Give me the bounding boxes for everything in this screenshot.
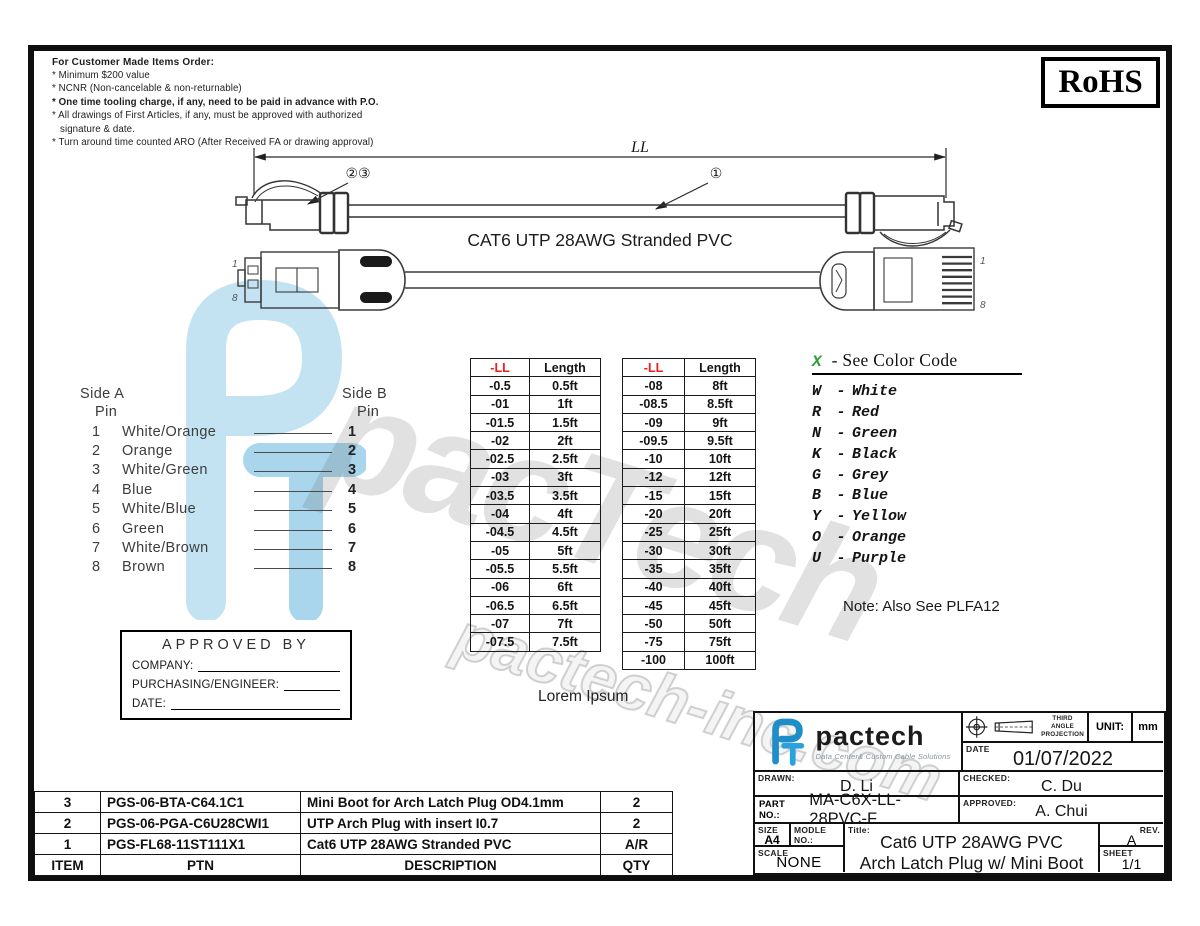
dash-separator: - xyxy=(830,550,852,567)
ll-code-cell: -01.5 xyxy=(471,413,530,431)
length-value-cell: 50ft xyxy=(685,615,756,633)
pactech-logo-cell: pactech Data Center& Custom Cable Soluti… xyxy=(755,713,963,772)
wiring-row: 4 Blue 4 xyxy=(92,480,398,499)
cable-label: CAT6 UTP 28AWG Stranded PVC xyxy=(467,230,732,250)
length-value-cell: 9ft xyxy=(685,413,756,431)
wiring-row: 7 White/Brown 7 xyxy=(92,538,398,557)
ll-code-cell: -40 xyxy=(623,578,685,596)
side-b-pin-number: 2 xyxy=(348,443,356,459)
ll-code-cell: -06.5 xyxy=(471,596,530,614)
ll-code-cell: -03 xyxy=(471,468,530,486)
color-name: White xyxy=(852,383,897,400)
length-table-row: -0.5 0.5ft xyxy=(471,377,601,395)
color-name: Grey xyxy=(852,467,888,484)
ll-code-cell: -09.5 xyxy=(623,432,685,450)
ll-code-cell: -20 xyxy=(623,505,685,523)
title-block: pactech Data Center& Custom Cable Soluti… xyxy=(753,711,1166,875)
side-a-pin-number: 6 xyxy=(92,521,122,537)
dash-separator: - xyxy=(830,508,852,525)
length-value-cell: 1.5ft xyxy=(530,413,601,431)
length-table-row: -08.5 8.5ft xyxy=(623,395,756,413)
ll-code-cell: -02.5 xyxy=(471,450,530,468)
note-line: * NCNR (Non-cancelable & non-returnable) xyxy=(52,82,404,95)
approved-field-label: PURCHASING/ENGINEER: xyxy=(132,679,279,691)
bom-item-cell: 1 xyxy=(35,834,101,855)
length-value-cell: 9.5ft xyxy=(685,432,756,450)
date-cell: DATE 01/07/2022 xyxy=(963,743,1163,772)
side-b-pin-number: 1 xyxy=(348,424,356,440)
length-value-cell: 2ft xyxy=(530,432,601,450)
length-table-row: -03.5 3.5ft xyxy=(471,487,601,505)
dash-separator: - xyxy=(830,529,852,546)
brand-tagline: Data Center& Custom Cable Solutions xyxy=(816,752,951,761)
dash-separator: - xyxy=(830,467,852,484)
bom-item-cell: 2 xyxy=(35,813,101,834)
projection-cell: THIRD ANGLE PROJECTION xyxy=(963,713,1089,743)
bom-table: 3 PGS-06-BTA-C64.1C1 Mini Boot for Arch … xyxy=(34,791,673,876)
bom-ptn-cell: PGS-06-PGA-C6U28CWI1 xyxy=(101,813,301,834)
side-b-pin-number: 3 xyxy=(348,462,356,478)
pin-1-label: 1 xyxy=(232,259,238,270)
length-value-cell: 3.5ft xyxy=(530,487,601,505)
color-name: Red xyxy=(852,404,879,421)
length-value-cell: 75ft xyxy=(685,633,756,651)
wire-color-label: White/Brown xyxy=(122,540,254,556)
side-b-pin-number: 4 xyxy=(348,482,356,498)
color-name: Purple xyxy=(852,550,906,567)
approved-field-label: DATE: xyxy=(132,698,166,710)
length-table-row: -75 75ft xyxy=(623,633,756,651)
color-code-entry: Y - Yellow xyxy=(812,506,1022,527)
ll-code-cell: -35 xyxy=(623,560,685,578)
model-no-label: MODLE NO.: xyxy=(794,825,843,845)
length-table-row: -06 6ft xyxy=(471,578,601,596)
side-b-pin-number: 6 xyxy=(348,521,356,537)
wire-connection-line xyxy=(254,530,332,531)
rev-label: REV. xyxy=(1140,825,1160,835)
bom-description-cell: UTP Arch Plug with insert I0.7 xyxy=(301,813,601,834)
ll-code-cell: -0.5 xyxy=(471,377,530,395)
wire-connection-line xyxy=(254,549,332,550)
length-table-2: -LL Length -08 8ft -08.5 8.5ft -09 9ft -… xyxy=(622,358,756,670)
date-value: 01/07/2022 xyxy=(963,743,1163,771)
color-code-entry: N - Green xyxy=(812,423,1022,444)
ll-code-cell: -08 xyxy=(623,377,685,395)
side-b-pin-number: 7 xyxy=(348,540,356,556)
approved-field: DATE: xyxy=(132,698,340,710)
side-a-pin-number: 8 xyxy=(92,559,122,575)
dim-label: LL xyxy=(630,139,649,156)
wire-color-label: Green xyxy=(122,521,254,537)
ll-code-cell: -07 xyxy=(471,615,530,633)
length-table-row: -35 35ft xyxy=(623,560,756,578)
length-value-cell: 100ft xyxy=(685,651,756,669)
length-table-row: -03 3ft xyxy=(471,468,601,486)
length-value-cell: 2.5ft xyxy=(530,450,601,468)
color-code-entry: W - White xyxy=(812,381,1022,402)
length-table-row: -12 12ft xyxy=(623,468,756,486)
signature-line xyxy=(171,699,340,710)
wire-connection-line xyxy=(254,433,332,434)
title-line-1: Cat6 UTP 28AWG PVC xyxy=(845,832,1098,853)
length-table-row: -100 100ft xyxy=(623,651,756,669)
part-no-value: MA-C6X-LL-28PVC-F xyxy=(809,791,958,829)
size-cell: SIZE A4 xyxy=(755,824,791,847)
ll-code-cell: -03.5 xyxy=(471,487,530,505)
wiring-row: 1 White/Orange 1 xyxy=(92,422,398,441)
color-name: Blue xyxy=(852,487,888,504)
length-value-cell: 4ft xyxy=(530,505,601,523)
side-a-title: Side A xyxy=(80,386,124,402)
color-code-entries: W - White R - Red N - Green K - Black G … xyxy=(812,381,1022,569)
rev-cell: REV. A xyxy=(1100,824,1163,847)
ll-code-cell: -02 xyxy=(471,432,530,450)
wiring-row: 2 Orange 2 xyxy=(92,441,398,460)
callout-2-3: ②③ xyxy=(345,165,370,181)
color-letter: K xyxy=(812,446,830,463)
length-table-row: -07.5 7.5ft xyxy=(471,633,601,651)
bom-row: 2 PGS-06-PGA-C6U28CWI1 UTP Arch Plug wit… xyxy=(35,813,673,834)
pin-8-label: 8 xyxy=(232,293,238,304)
ll-header-cell: -LL xyxy=(623,359,685,377)
rj45-pin-comb xyxy=(942,257,972,303)
length-value-cell: 12ft xyxy=(685,468,756,486)
length-table-row: -40 40ft xyxy=(623,578,756,596)
ll-code-cell: -09 xyxy=(623,413,685,431)
approved-fields: COMPANY: PURCHASING/ENGINEER: DATE: xyxy=(132,660,340,710)
color-letter: R xyxy=(812,404,830,421)
bom-qty-cell: 2 xyxy=(601,813,673,834)
pin-8-label: 8 xyxy=(980,300,986,311)
color-name: Orange xyxy=(852,529,906,546)
ll-code-cell: -15 xyxy=(623,487,685,505)
ll-code-cell: -04.5 xyxy=(471,523,530,541)
ll-code-cell: -05 xyxy=(471,541,530,559)
bom-header-row: ITEM PTN DESCRIPTION QTY xyxy=(35,855,673,876)
length-value-cell: 4.5ft xyxy=(530,523,601,541)
length-table-row: -09 9ft xyxy=(623,413,756,431)
length-table-row: -10 10ft xyxy=(623,450,756,468)
part-no-cell: PART NO.: MA-C6X-LL-28PVC-F xyxy=(755,797,960,824)
bom-item-header: ITEM xyxy=(35,855,101,876)
side-a-pin-number: 1 xyxy=(92,424,122,440)
left-plug-top xyxy=(261,252,339,308)
bom-description-cell: Cat6 UTP 28AWG Stranded PVC xyxy=(301,834,601,855)
side-a-pin-number: 3 xyxy=(92,462,122,478)
bom-row: 3 PGS-06-BTA-C64.1C1 Mini Boot for Arch … xyxy=(35,792,673,813)
color-code-entry: R - Red xyxy=(812,402,1022,423)
wire-color-label: White/Orange xyxy=(122,424,254,440)
color-code-header-text: - See Color Code xyxy=(832,350,958,371)
length-table-row: -45 45ft xyxy=(623,596,756,614)
right-boot xyxy=(846,193,860,233)
color-letter: U xyxy=(812,550,830,567)
length-value-cell: 5ft xyxy=(530,541,601,559)
length-table-header: -LL Length xyxy=(471,359,601,377)
dash-separator: - xyxy=(830,425,852,442)
dash-separator: - xyxy=(830,404,852,421)
third-angle-projection-icon xyxy=(966,715,1038,739)
length-table-row: -07 7ft xyxy=(471,615,601,633)
length-table-row: -08 8ft xyxy=(623,377,756,395)
bom-description-header: DESCRIPTION xyxy=(301,855,601,876)
cable-top-view xyxy=(238,248,974,310)
left-plug-body xyxy=(246,200,320,230)
wire-color-label: White/Green xyxy=(122,462,254,478)
side-b-title: Side B xyxy=(342,386,387,402)
notes-title: For Customer Made Items Order: xyxy=(52,57,404,68)
rohs-logo: RoHS xyxy=(1041,57,1160,108)
length-value-cell: 30ft xyxy=(685,541,756,559)
color-letter: W xyxy=(812,383,830,400)
side-a-pin-number: 4 xyxy=(92,482,122,498)
approved-field: COMPANY: xyxy=(132,660,340,672)
length-table-row: -09.5 9.5ft xyxy=(623,432,756,450)
color-code-legend: X - See Color Code W - White R - Red N -… xyxy=(812,350,1022,569)
color-code-entry: U - Purple xyxy=(812,548,1022,569)
dash-separator: - xyxy=(830,446,852,463)
note-line: * All drawings of First Articles, if any… xyxy=(52,109,404,136)
ll-code-cell: -100 xyxy=(623,651,685,669)
cable-drawing: LL ②③ ① CAT6 UTP 28AWG Stranded PVC xyxy=(228,138,1000,336)
boot-slot xyxy=(360,256,392,267)
callout-1: ① xyxy=(710,165,723,181)
length-value-cell: 45ft xyxy=(685,596,756,614)
approved-field: PURCHASING/ENGINEER: xyxy=(132,679,340,691)
ll-code-cell: -05.5 xyxy=(471,560,530,578)
sheet-cell: SHEET 1/1 xyxy=(1100,847,1163,872)
length-table-row: -30 30ft xyxy=(623,541,756,559)
color-code-entry: O - Orange xyxy=(812,527,1022,548)
wiring-row: 3 White/Green 3 xyxy=(92,461,398,480)
unit-value-cell: mm xyxy=(1133,713,1163,743)
color-letter: O xyxy=(812,529,830,546)
bom-ptn-cell: PGS-FL68-11ST111X1 xyxy=(101,834,301,855)
length-value-cell: 7.5ft xyxy=(530,633,601,651)
title-label: Title: xyxy=(848,825,870,835)
dash-separator: - xyxy=(830,487,852,504)
length-value-cell: 25ft xyxy=(685,523,756,541)
length-header-cell: Length xyxy=(530,359,601,377)
length-table-row: -06.5 6.5ft xyxy=(471,596,601,614)
color-code-entry: K - Black xyxy=(812,444,1022,465)
length-value-cell: 1ft xyxy=(530,395,601,413)
ll-header-cell: -LL xyxy=(471,359,530,377)
plfa12-note: Note: Also See PLFA12 xyxy=(843,598,1000,615)
side-b-pin-label: Pin xyxy=(357,404,379,420)
boot-slot xyxy=(360,292,392,303)
note-line: * One time tooling charge, if any, need … xyxy=(52,96,404,109)
unit-label-cell: UNIT: xyxy=(1089,713,1133,743)
length-table-row: -20 20ft xyxy=(623,505,756,523)
wire-connection-line xyxy=(254,568,332,569)
ll-code-cell: -08.5 xyxy=(623,395,685,413)
color-code-header: X - See Color Code xyxy=(812,350,1022,375)
ll-code-cell: -12 xyxy=(623,468,685,486)
length-value-cell: 10ft xyxy=(685,450,756,468)
ll-code-cell: -25 xyxy=(623,523,685,541)
ll-code-cell: -04 xyxy=(471,505,530,523)
sheet-label: SHEET xyxy=(1103,848,1133,858)
approved-by-title: APPROVED BY xyxy=(132,637,340,653)
bom-item-cell: 3 xyxy=(35,792,101,813)
wire-color-label: White/Blue xyxy=(122,501,254,517)
length-value-cell: 40ft xyxy=(685,578,756,596)
scale-label: SCALE xyxy=(758,848,788,858)
bom-qty-cell: A/R xyxy=(601,834,673,855)
length-value-cell: 8ft xyxy=(685,377,756,395)
brand-name: pactech xyxy=(816,723,951,750)
color-letter: N xyxy=(812,425,830,442)
size-label: SIZE xyxy=(758,825,778,835)
color-letter: Y xyxy=(812,508,830,525)
length-table-row: -25 25ft xyxy=(623,523,756,541)
model-no-cell: MODLE NO.: xyxy=(791,824,845,847)
length-table-header: -LL Length xyxy=(623,359,756,377)
length-value-cell: 35ft xyxy=(685,560,756,578)
length-table-1: -LL Length -0.5 0.5ft -01 1ft -01.5 1.5f… xyxy=(470,358,601,652)
color-name: Black xyxy=(852,446,897,463)
approved-field-label: COMPANY: xyxy=(132,660,193,672)
title-cell: Title: Cat6 UTP 28AWG PVC Arch Latch Plu… xyxy=(845,824,1100,872)
ll-code-cell: -07.5 xyxy=(471,633,530,651)
checked-label: CHECKED: xyxy=(963,773,1010,783)
signature-line xyxy=(198,661,340,672)
length-table-row: -02.5 2.5ft xyxy=(471,450,601,468)
color-name: Green xyxy=(852,425,897,442)
color-letter: G xyxy=(812,467,830,484)
side-a-pin-label: Pin xyxy=(95,404,117,420)
bom-description-cell: Mini Boot for Arch Latch Plug OD4.1mm xyxy=(301,792,601,813)
color-letter: B xyxy=(812,487,830,504)
length-table-row: -04.5 4.5ft xyxy=(471,523,601,541)
length-value-cell: 3ft xyxy=(530,468,601,486)
wire-color-label: Orange xyxy=(122,443,254,459)
lorem-ipsum-text: Lorem Ipsum xyxy=(538,688,628,706)
approved-label: APPROVED: xyxy=(963,798,1016,808)
right-plug-body xyxy=(874,196,954,230)
wire-color-label: Blue xyxy=(122,482,254,498)
drawing-sheet: pacTech pactech-inc.com For Customer Mad… xyxy=(0,0,1200,926)
checked-cell: CHECKED: C. Du xyxy=(960,772,1163,797)
color-code-entry: B - Blue xyxy=(812,485,1022,506)
length-header-cell: Length xyxy=(685,359,756,377)
bom-ptn-header: PTN xyxy=(101,855,301,876)
wire-connection-line xyxy=(254,510,332,511)
dash-separator: - xyxy=(830,383,852,400)
length-value-cell: 6ft xyxy=(530,578,601,596)
left-boot xyxy=(320,193,334,233)
ll-code-cell: -10 xyxy=(623,450,685,468)
length-value-cell: 6.5ft xyxy=(530,596,601,614)
part-no-label: PART NO.: xyxy=(759,799,805,821)
wire-connection-line xyxy=(254,471,332,472)
scale-cell: SCALE NONE xyxy=(755,847,845,872)
length-table-row: -05 5ft xyxy=(471,541,601,559)
bom-qty-header: QTY xyxy=(601,855,673,876)
wiring-row: 6 Green 6 xyxy=(92,519,398,538)
ll-code-cell: -06 xyxy=(471,578,530,596)
wiring-row: 5 White/Blue 5 xyxy=(92,500,398,519)
length-table-row: -04 4ft xyxy=(471,505,601,523)
ll-code-cell: -50 xyxy=(623,615,685,633)
side-b-pin-number: 8 xyxy=(348,559,356,575)
ll-code-cell: -01 xyxy=(471,395,530,413)
length-value-cell: 8.5ft xyxy=(685,395,756,413)
color-code-entry: G - Grey xyxy=(812,465,1022,486)
pactech-pt-icon xyxy=(766,717,808,767)
wire-connection-line xyxy=(254,491,332,492)
length-table-row: -01 1ft xyxy=(471,395,601,413)
title-line-2: Arch Latch Plug w/ Mini Boot xyxy=(845,853,1098,874)
color-name: Yellow xyxy=(852,508,906,525)
approved-cell: APPROVED: A. Chui xyxy=(960,797,1163,824)
pactech-logo-text: pactech Data Center& Custom Cable Soluti… xyxy=(816,723,951,761)
customer-notes: For Customer Made Items Order: * Minimum… xyxy=(52,57,404,149)
projection-label: THIRD ANGLE PROJECTION xyxy=(1041,715,1084,739)
length-table-row: -02 2ft xyxy=(471,432,601,450)
wire-color-label: Brown xyxy=(122,559,254,575)
length-table-row: -01.5 1.5ft xyxy=(471,413,601,431)
approved-by-box: APPROVED BY COMPANY: PURCHASING/ENGINEER… xyxy=(120,630,352,720)
bom-qty-cell: 2 xyxy=(601,792,673,813)
right-boot-top xyxy=(820,252,874,310)
length-table-row: -15 15ft xyxy=(623,487,756,505)
length-table-row: -50 50ft xyxy=(623,615,756,633)
signature-line xyxy=(284,680,340,691)
date-label: DATE xyxy=(966,744,990,754)
bom-row: 1 PGS-FL68-11ST111X1 Cat6 UTP 28AWG Stra… xyxy=(35,834,673,855)
length-value-cell: 0.5ft xyxy=(530,377,601,395)
length-value-cell: 7ft xyxy=(530,615,601,633)
note-line: * Minimum $200 value xyxy=(52,69,404,82)
ll-code-cell: -30 xyxy=(623,541,685,559)
wiring-rows: 1 White/Orange 1 2 Orange 2 3 White/Gree… xyxy=(92,422,398,577)
ll-code-cell: -45 xyxy=(623,596,685,614)
side-a-pin-number: 5 xyxy=(92,501,122,517)
length-table-row: -05.5 5.5ft xyxy=(471,560,601,578)
ll-code-cell: -75 xyxy=(623,633,685,651)
bom-ptn-cell: PGS-06-BTA-C64.1C1 xyxy=(101,792,301,813)
length-value-cell: 5.5ft xyxy=(530,560,601,578)
side-a-pin-number: 2 xyxy=(92,443,122,459)
side-a-pin-number: 7 xyxy=(92,540,122,556)
length-value-cell: 20ft xyxy=(685,505,756,523)
length-value-cell: 15ft xyxy=(685,487,756,505)
side-b-pin-number: 5 xyxy=(348,501,356,517)
pin-1-label: 1 xyxy=(980,256,986,267)
wire-connection-line xyxy=(254,452,332,453)
wiring-row: 8 Brown 8 xyxy=(92,558,398,577)
color-code-x: X xyxy=(812,353,822,371)
drawn-label: DRAWN: xyxy=(758,773,795,783)
